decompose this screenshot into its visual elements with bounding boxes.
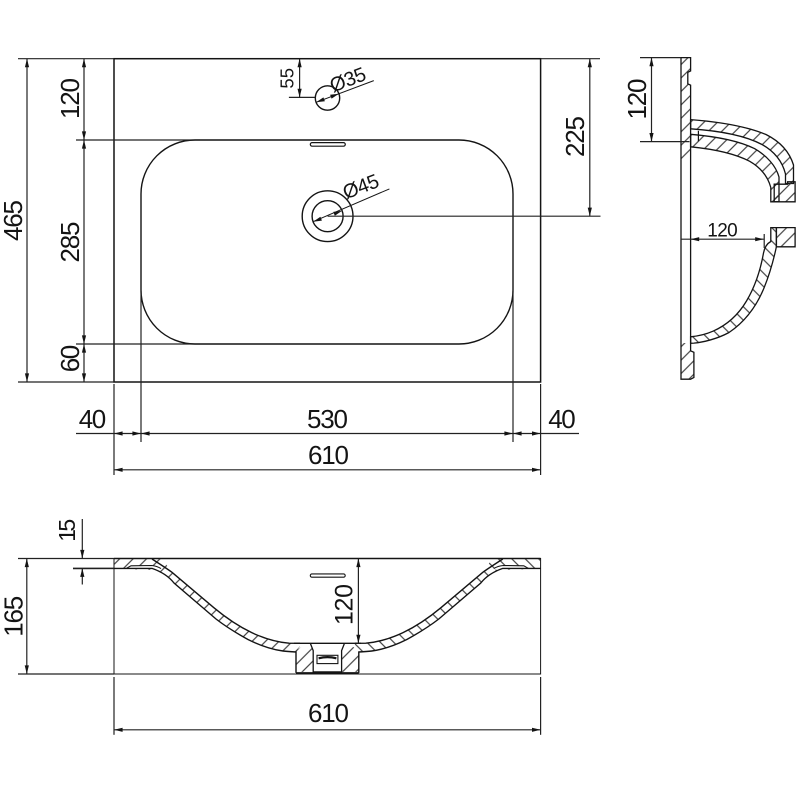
svg-text:285: 285 [55,222,85,263]
svg-text:610: 610 [308,698,349,728]
svg-text:120: 120 [55,78,85,119]
svg-text:165: 165 [0,596,29,637]
svg-text:40: 40 [79,404,107,434]
svg-text:40: 40 [548,404,576,434]
svg-text:610: 610 [308,440,349,470]
svg-text:120: 120 [622,79,652,120]
svg-text:60: 60 [55,345,85,373]
svg-text:120: 120 [331,584,359,625]
svg-text:530: 530 [307,404,348,434]
svg-text:120: 120 [707,220,738,241]
svg-text:15: 15 [54,519,80,542]
svg-text:225: 225 [560,116,590,157]
svg-text:465: 465 [0,200,28,241]
svg-text:55: 55 [277,68,298,89]
